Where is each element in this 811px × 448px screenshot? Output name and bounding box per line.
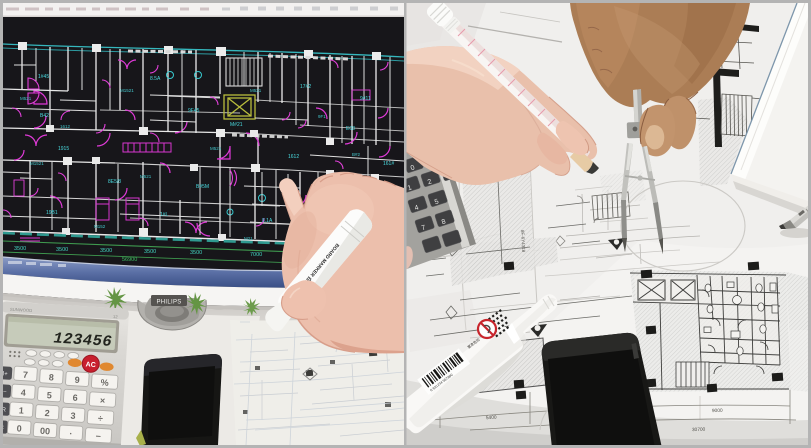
svg-text:56900: 56900: [122, 257, 137, 263]
svg-text:×: ×: [100, 395, 106, 405]
svg-text:7000: 7000: [250, 252, 262, 258]
svg-text:1#L: 1#L: [160, 212, 169, 218]
svg-text:M#21: M#21: [230, 122, 243, 128]
svg-text:M152: M152: [94, 224, 106, 229]
svg-text:30700: 30700: [692, 427, 706, 433]
svg-text:123456: 123456: [53, 329, 113, 351]
svg-text:5: 5: [46, 390, 52, 400]
svg-text:5400: 5400: [486, 415, 497, 422]
svg-text:M521: M521: [210, 146, 222, 151]
svg-text:3500: 3500: [144, 249, 156, 255]
svg-text:1612: 1612: [60, 124, 71, 129]
svg-text:B#5M: B#5M: [196, 184, 209, 190]
svg-text:4: 4: [21, 388, 27, 398]
svg-text:M521: M521: [20, 96, 32, 101]
svg-text:3: 3: [70, 411, 76, 421]
svg-text:M21: M21: [244, 236, 253, 241]
svg-text:3500: 3500: [14, 246, 26, 252]
svg-text:17#2: 17#2: [300, 84, 311, 90]
svg-text:9#11: 9#11: [360, 96, 371, 102]
svg-text:8: 8: [49, 372, 55, 382]
svg-text:B#2: B#2: [352, 152, 361, 157]
svg-text:M1521: M1521: [30, 161, 44, 166]
svg-text:−: −: [95, 431, 101, 441]
svg-text:PHILIPS: PHILIPS: [156, 300, 181, 306]
svg-text:9: 9: [74, 375, 80, 385]
svg-text:2: 2: [44, 408, 50, 418]
svg-text:3500: 3500: [100, 248, 112, 254]
svg-text:·: ·: [69, 429, 73, 439]
svg-text:9F1: 9F1: [318, 114, 326, 119]
svg-text:0: 0: [16, 423, 22, 433]
svg-text:3500: 3500: [56, 247, 68, 253]
svg-text:19B1: 19B1: [46, 210, 58, 216]
svg-text:6: 6: [72, 393, 78, 403]
svg-text:8E5/8: 8E5/8: [108, 179, 121, 185]
svg-text:M1521: M1521: [120, 88, 134, 93]
svg-text:161#: 161#: [383, 161, 394, 167]
svg-text:8.1A: 8.1A: [262, 218, 273, 224]
svg-text:9F45: 9F45: [188, 108, 200, 114]
svg-text:8.5A: 8.5A: [150, 76, 161, 82]
svg-text:M521: M521: [140, 174, 152, 179]
svg-text:1915: 1915: [58, 146, 69, 152]
svg-text:B42: B42: [40, 113, 49, 119]
svg-text:%: %: [100, 377, 109, 387]
svg-text:3500: 3500: [190, 250, 202, 256]
svg-text:M521: M521: [250, 88, 262, 93]
svg-text:1612: 1612: [288, 154, 299, 160]
svg-text:AC: AC: [85, 361, 96, 369]
svg-text:7: 7: [23, 370, 29, 380]
svg-text:00: 00: [40, 426, 51, 437]
svg-text:1#45: 1#45: [38, 74, 49, 80]
svg-text:÷: ÷: [98, 413, 104, 423]
svg-text:9000: 9000: [712, 408, 723, 414]
svg-text:E08: E08: [346, 126, 355, 132]
svg-text:1: 1: [18, 405, 24, 415]
